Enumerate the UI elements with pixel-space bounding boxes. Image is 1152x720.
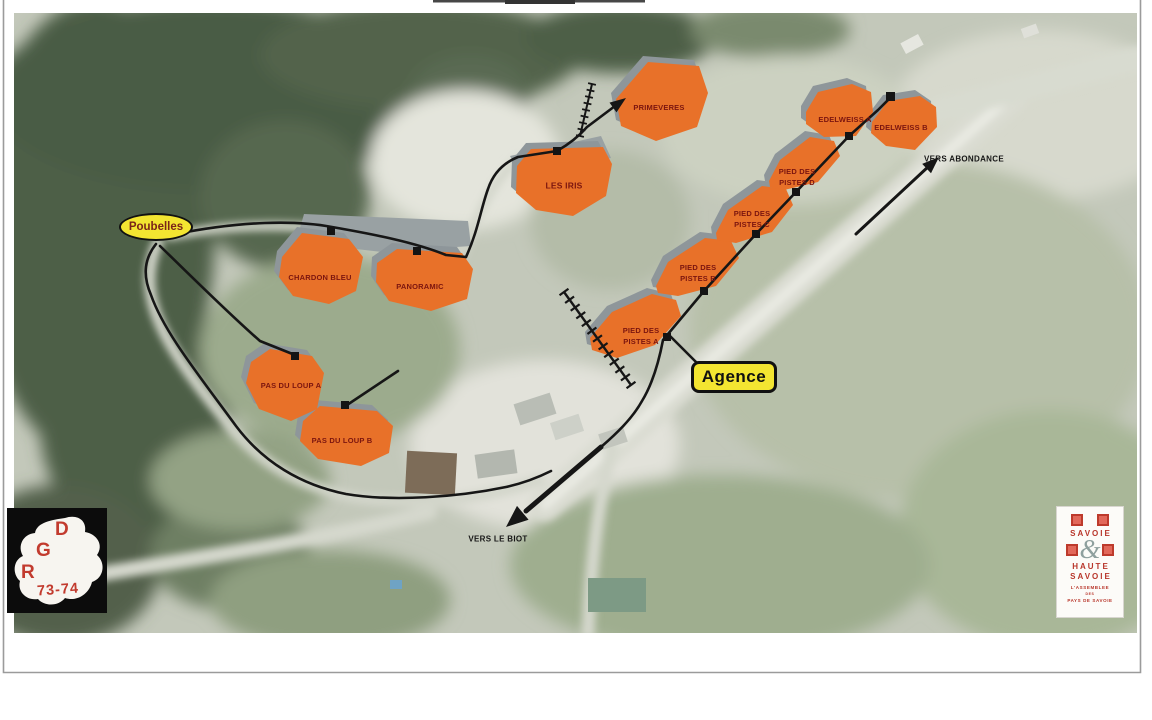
savoie-word-2: SAVOIE xyxy=(1068,572,1112,581)
dgr-letter-g: G xyxy=(36,541,51,560)
poubelles-callout: Poubelles xyxy=(119,213,193,241)
des-text: DES xyxy=(1086,592,1095,596)
red-square-icon xyxy=(1097,514,1109,526)
label-pied-des-pistes-c: PIED DES PISTES C xyxy=(734,208,771,230)
label-line: PIED DES xyxy=(779,166,816,177)
label-edelweiss-a: EDELWEISS A xyxy=(818,115,871,125)
label-vers-abondance: VERS ABONDANCE xyxy=(924,155,1004,164)
red-square-icon xyxy=(1102,544,1114,556)
label-line: PISTES A xyxy=(623,336,660,347)
red-square-icon xyxy=(1071,514,1083,526)
poubelles-label: Poubelles xyxy=(129,221,183,233)
label-line: PIED DES xyxy=(623,325,660,336)
label-primeveres: PRIMEVERES xyxy=(633,103,684,113)
aerial-photo-map xyxy=(0,0,1152,720)
label-line: PISTES B xyxy=(680,273,717,284)
label-line: PIED DES xyxy=(680,262,717,273)
ampersand-row: & xyxy=(1057,541,1123,559)
label-line: PIED DES xyxy=(734,208,771,219)
label-pied-des-pistes-a: PIED DES PISTES A xyxy=(623,325,660,347)
red-square-icon xyxy=(1066,544,1078,556)
label-pas-du-loup-a: PAS DU LOUP A xyxy=(261,381,321,391)
savoie-haute-savoie-logo: SAVOIE & HAUTE SAVOIE L'ASSEMBLEE DES PA… xyxy=(1057,507,1123,617)
label-chardon-bleu: CHARDON BLEU xyxy=(288,273,351,283)
label-pied-des-pistes-b: PIED DES PISTES B xyxy=(680,262,717,284)
label-line: PISTES D xyxy=(779,177,816,188)
aerial-photo-terrain xyxy=(0,0,1152,655)
logo-squares-row xyxy=(1071,514,1109,526)
assemblee-text: L'ASSEMBLEE xyxy=(1071,585,1109,590)
agence-callout: Agence xyxy=(691,361,777,393)
dgr-letter-r: R xyxy=(21,563,35,582)
label-les-iris: LES IRIS xyxy=(545,180,582,191)
dgr-letter-d: D xyxy=(55,520,69,539)
dgr-code: 73-74 xyxy=(36,581,79,600)
pays-de-savoie-text: PAYS DE SAVOIE xyxy=(1067,598,1112,603)
label-panoramic: PANORAMIC xyxy=(396,282,444,292)
resort-plan-page: PRIMEVERES LES IRIS CHARDON BLEU PANORAM… xyxy=(0,0,1152,720)
label-vers-le-biot: VERS LE BIOT xyxy=(468,535,527,544)
label-edelweiss-b: EDELWEISS B xyxy=(874,123,927,133)
cropped-title-fragment xyxy=(433,0,645,4)
ampersand-glyph: & xyxy=(1079,534,1100,565)
agence-label: Agence xyxy=(702,367,766,387)
label-line: PISTES C xyxy=(734,219,771,230)
dgr-73-74-logo: D G R 73-74 xyxy=(7,508,107,613)
label-pas-du-loup-b: PAS DU LOUP B xyxy=(312,436,373,446)
label-pied-des-pistes-d: PIED DES PISTES D xyxy=(779,166,816,188)
